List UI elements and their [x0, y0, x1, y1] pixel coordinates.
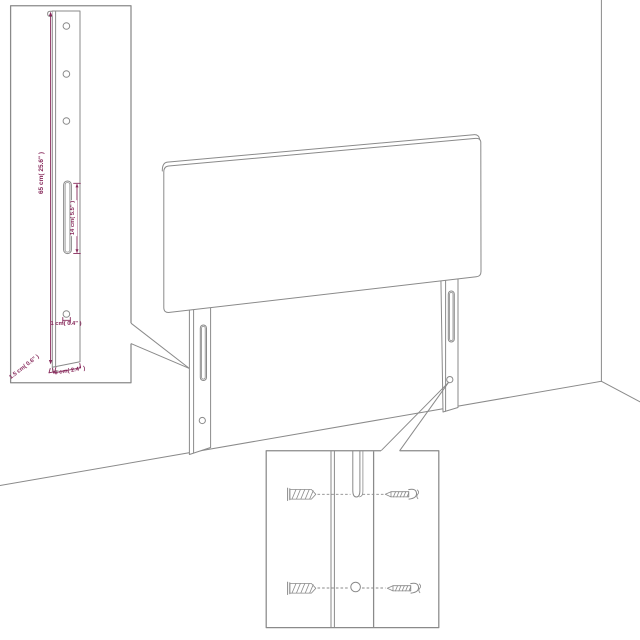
headboard-line-art [0, 0, 640, 640]
dimension-label-height: 65 cm( 25.6" ) [39, 152, 46, 194]
dimension-label-slot-length: 14 cm( 5.5" ) [71, 200, 77, 236]
callout-lines-left-inset [131, 323, 190, 368]
inset-leg-hole-3 [63, 118, 70, 125]
inset-leg-hole-bottom [63, 311, 70, 318]
dimension-label-hole-diameter: 1 cm( 0.4" ) [50, 322, 81, 328]
panel-front-face [164, 138, 481, 312]
headboard-left-leg [189, 298, 210, 455]
callout-lines-right-inset [381, 382, 449, 451]
left-leg-hole [199, 417, 205, 423]
detail-inset-hardware [266, 451, 439, 628]
inset-leg-hole-2 [63, 71, 70, 78]
right-leg-hole [447, 377, 453, 383]
inset-leg-hole-1 [63, 23, 70, 30]
headboard-right-leg [441, 270, 458, 412]
headboard-panel [162, 135, 481, 313]
floor-line-right [601, 381, 640, 402]
diagram-canvas: 65 cm( 25.6" ) 14 cm( 5.5" ) 1 cm( 0.4" … [0, 0, 640, 640]
